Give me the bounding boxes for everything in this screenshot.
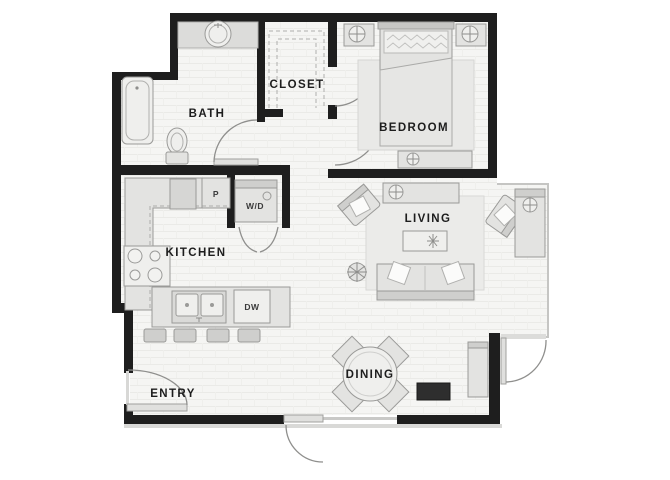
entry-label: ENTRY [150,388,196,400]
burner [148,268,162,282]
burner [150,251,160,261]
closet-label: CLOSET [269,79,324,91]
side-cabinet-top [468,342,488,348]
entry-door-leaf [127,404,187,411]
pantry-label: P [213,189,219,199]
wall-door-stub [328,105,337,119]
living-label: LIVING [405,213,452,225]
sofa-back [377,291,474,300]
bath-door-leaf [214,159,258,165]
patio-door-threshold [501,334,546,339]
patio-door-right-leaf [501,338,506,384]
patio-door-arc [286,425,323,462]
washer-dryer-label: W/D [246,201,264,211]
wall-bottom-left [124,415,284,424]
dining-label: DINING [346,369,395,381]
wall-shadow [124,424,502,428]
wall-wd-right [282,165,290,228]
wall-left-lower [124,303,133,373]
wall-right-lower [489,333,500,424]
bedroom-label: BEDROOM [379,122,449,134]
patio-door-bottom [284,415,323,462]
wall-bottom-right [397,415,500,424]
kitchen-label: KITCHEN [166,247,227,259]
bathtub-drain [135,86,138,89]
bedroom-furniture [344,22,486,168]
wall-bedroom-living [328,169,497,178]
desk-shelf [515,189,545,197]
wall-bath-kitchen [112,165,290,175]
bar-stool [207,329,229,342]
patio-door-leaf [284,415,323,422]
fridge [170,179,196,209]
sink-drain [210,303,214,307]
wall-left-upper [112,72,121,313]
burner [130,270,140,280]
floor-plan-drawing: BATH CLOSET BEDROOM KITCHEN LIVING DININ… [0,0,670,480]
entry-door-jamb [126,371,129,405]
side-cabinet [468,342,488,397]
media-console [417,383,450,400]
sink-drain [185,303,189,307]
floor-plan: BATH CLOSET BEDROOM KITCHEN LIVING DININ… [0,0,670,480]
burner [128,249,142,263]
headboard [378,22,454,29]
washer-dryer-panel [235,180,277,188]
window-bottom [323,417,397,420]
patio-door-right [501,334,546,384]
toilet-bowl [167,128,187,154]
wall-closet-bottom [257,109,283,117]
dishwasher-label: DW [244,302,260,312]
wall-bedroom-right [488,13,497,178]
bar-stool [174,329,196,342]
bath-label: BATH [189,108,226,120]
wall-closet-bedroom [328,22,337,67]
bar-stool [238,329,260,342]
bed-pillows [384,31,448,53]
patio-door-right-arc [506,340,546,382]
bar-stool [144,329,166,342]
wall-alcove-left [170,13,178,80]
toilet-tank [166,152,188,164]
coffee-table [403,231,447,251]
